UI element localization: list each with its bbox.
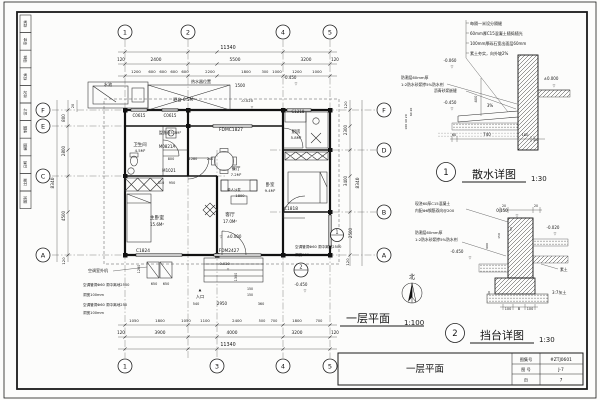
annotation-text: ▽ [304,289,307,293]
annotation-text: 5.8M² [291,135,302,140]
edge-strip-label: 审定 [23,37,28,45]
dim-total-top: 11340 [220,45,235,51]
note: 防潮层60mm厚 [401,75,429,80]
grid-bubble-label: C [41,172,46,180]
annotation-text: 240 [207,157,213,161]
edge-strip-label: 校对 [23,90,28,98]
annotation-text: 2400 [151,57,162,63]
annotation-text: 2400 [232,318,242,323]
annotation-text: 8340 [50,177,56,188]
level-mark: -0.450 [444,100,457,105]
edge-strip-label: 审核 [23,55,28,63]
callout-1-number: 1 [335,230,338,236]
note: 单人沙发 [227,187,241,192]
annotation-text: ▽ [451,65,454,69]
grid-bubble-label: 5 [328,362,332,370]
annotation-text: 800 [168,157,174,161]
annotation-text: 3200 [292,330,303,336]
eave-outline [104,99,339,264]
annotation-text: 120 [345,258,350,266]
room-label: 卧室 [266,181,275,188]
titleblock-value-sheetno: J-7 [557,367,564,373]
note: 1:2防水砂浆掺5%防水剂 [401,82,444,87]
note: 3:7灰土 [552,289,566,295]
titleblock-label-sheetno: 图 号 [521,367,531,373]
annotation-text: 120 [331,330,339,335]
annotation-text: 700 [316,319,323,323]
door-tag: M0821A [159,144,176,149]
entry-arrow: ▲ [199,288,202,292]
annotation-text: 60 [452,133,457,137]
annotation-text: B [518,307,521,311]
annotation-text: -0.450 [284,75,297,80]
room-label: 厨房 [292,128,301,135]
annotation-text: ▽ [451,107,454,111]
titleblock-value-page: 7 [560,378,563,384]
annotation-text: ▽ [469,256,472,260]
annotation-text: ▽ [295,82,298,86]
annotation-text: 120 [61,257,66,265]
note: 内配Φ6钢筋双向@200 [415,208,455,213]
annotation-text: 500 [259,319,266,323]
plan-annotations: 1134012024005500320012012006006006006002… [50,45,361,348]
annotation-text: 3200 [301,57,312,63]
annotation-text: ▽ [554,232,557,236]
annotation-text: 1800 [292,318,302,323]
dim-total-bottom: 11340 [220,342,235,348]
annotation-text: 2300 [343,124,348,135]
callout-2-number: 2 [299,265,302,271]
titleblock-label-page: 页 [524,378,528,384]
annotation-text: 600 [148,69,156,74]
window-C1818 [329,215,332,246]
grid-bubble-label: 1 [123,362,127,370]
annotation-text: 7.2M² [231,172,242,177]
window-tag: C0615 [133,113,146,118]
grid-bubble-label: 1 [123,28,127,36]
room-label: 客厅 [225,211,235,218]
note: 热水器位置 [191,78,211,84]
edge-strip-label: 日期 [23,161,28,169]
detail-2-curb: 现浇60厚C15混凝土内配Φ6钢筋双向@2000.150▽2020-0.020▽… [415,201,568,344]
annotation-text: ▽ [516,214,519,218]
plan-scale: 1:100 [404,319,424,327]
annotation-text: 4000 [227,330,238,336]
note: 空调管洞Φ60 洞中离地2500 [295,244,342,249]
annotation-text: 1000 [312,69,322,74]
bed-second [288,172,327,203]
grid-bubble-label: A [41,251,46,259]
plan-caption: 一层平面 1:100 [340,312,424,327]
annotation-text: ▽ [251,105,254,109]
annotation-text: 120 [343,101,348,109]
edge-strip-label: 图别 [23,196,28,204]
window-tag: C0615 [164,113,177,118]
annotation-text: 950 [169,181,175,185]
annotation-text: 9.4M² [265,188,276,193]
annotation-text: 1200 [292,69,302,74]
grid-bubble-label: 5 [328,28,332,36]
room-label: 餐厅 [232,165,241,172]
drawing-sheet: 批准审定审核标准校对设计制图描图日期比例图别 [0,0,600,400]
annotation-text: 100 [527,307,533,311]
level-mark: -0.020 [547,225,560,230]
annotation-text: 1050 [181,318,191,323]
window-door-FDMC1827 [213,125,252,128]
note: 100mm厚砾石宽出面层60mm [470,40,526,46]
annotation-text: 1100 [200,318,210,323]
annotation-text: 700 [271,319,278,323]
annotation-text: 1280 [137,265,141,274]
annotation-text: 150 [247,293,253,297]
door-tag: M1021 [162,168,176,173]
north-arrow: 北 [402,273,422,303]
grid-bubbles: 12451345FECAFDBA [36,25,391,373]
detail2-title: 挡台详图 [480,328,524,342]
grid-bubble-label: 3 [215,362,219,370]
note: 防潮层60mm厚 [415,230,443,235]
detail1-scale: 1:30 [531,175,547,183]
annotation-text: 50 [487,291,491,295]
annotation-text: 4.5M² [135,148,146,153]
grid-bubble-label: B [382,208,386,216]
level-mark: -0.450 [451,249,464,254]
annotation-text: 1200 [131,69,141,74]
window-tag: C1824 [136,248,150,254]
annotation-text: 20 [534,204,538,208]
sofa [221,180,257,204]
note: 1:2防水砂浆掺5%防水剂 [415,237,458,242]
annotation-text: 2800 [61,145,66,156]
toilet [130,153,138,166]
sheet-canvas: 批准审定审核标准校对设计制图描图日期比例图别 [0,0,600,400]
annotation-text: ▽ [553,84,556,88]
annotation-text: 100 [505,307,511,311]
note: 洞宽100mm [83,310,105,315]
washbasin [128,168,134,174]
plan-title: 一层平面 [346,312,390,325]
annotation-text: 5500 [230,57,241,63]
level-mark: -0.450 [295,282,308,287]
note: 洞宽100mm [295,252,317,257]
tv-stand [203,203,217,217]
edge-strip-label: 标准 [23,73,28,81]
cabinet-row [285,152,328,160]
door-tag: FDMC1827 [219,127,243,133]
annotation-text: 3400 [343,175,348,186]
room-label: 主卧室 [150,214,165,221]
window-C1824 [136,254,182,257]
level-mark: -0.020 [218,262,230,266]
door-tag: FDM2427 [219,248,240,254]
annotation-text: -0.020 [241,98,254,103]
titleblock-label-atlas: 图集号 [520,356,533,363]
detail1-number: 1 [443,168,448,178]
note: 现浇60厚C15混凝土 [415,201,450,206]
level-mark: ±0.000 [227,234,242,239]
annotation-text: 650 [163,282,169,286]
annotation-text: 360 [258,302,264,306]
annotation-text: 2500 [348,227,353,238]
sheet-title: 一层平面 [406,364,444,375]
annotation-text: 100 40 20 [404,114,408,129]
annotation-text: 8340 [355,177,361,188]
grid-bubble-label: A [382,251,387,259]
annotation-text: 150 [247,287,253,291]
edge-strip-label: 比例 [23,178,28,186]
annotation-text: 3% [487,103,494,108]
annotation-text: ▽ [227,267,230,271]
annotation-text: 1300 [234,273,238,282]
note: 素土夯实，向外坡2% [470,50,509,56]
grid-bubble-label: E [41,122,45,130]
annotation-text: 2950 [217,301,228,306]
note: 空调室外机 [88,267,108,273]
bed-master [127,194,151,242]
titleblock-value-atlas: #ZTJ0601 [550,357,572,363]
edge-strip-label: 描图 [23,143,28,151]
grid-bubble-label: F [382,106,386,114]
annotation-text: 180 [522,133,530,137]
annotation-text: 540 [193,302,199,306]
entry-label: 入口 [196,294,204,299]
window-C0615 [131,109,147,112]
note: 素土 [560,267,568,272]
annotation-text: 1280 [189,157,198,161]
note: 洞宽100mm [83,292,105,297]
annotation-text: 3900 [155,330,166,336]
room-label: 晒台 6.5M² [173,96,195,103]
room-label: 盥洗间3.3M² [159,130,182,135]
annotation-text: ▽ [220,235,223,239]
annotation-text: 120 [331,57,339,62]
detail-1-apron: 每隔一米设分隔缝60mm厚C15混凝土随捣随光100mm厚砾石宽出面层60mm素… [401,20,570,183]
grid-bubble-label: 4 [281,362,285,370]
annotation-text: 50 [509,227,513,231]
room-label: 卫生间 [133,141,146,148]
note: 每隔一米设分隔缝 [470,20,502,26]
detail2-scale: 1:30 [539,336,555,344]
annotation-text: 600 [485,243,489,249]
level-mark: -0.060 [444,58,457,63]
title-bar: 一层平面 图集号 #ZTJ0601 图 号 J-7 页 7 [338,353,583,385]
edge-strip-label: 制图 [23,125,28,133]
annotation-text: 2200 [205,69,215,74]
north-label: 北 [409,273,415,281]
grid-bubble-label: F [41,106,45,114]
grid-bubble-label: D [381,146,386,154]
annotation-text: 800 [61,114,66,122]
detail2-number: 2 [452,329,457,339]
annotation-text: 400 [474,95,478,103]
annotation-text: 310 [158,181,164,185]
annotation-text: 650 [151,282,157,286]
annotation-text: 740 [483,132,491,137]
edge-strip-label: 设计 [23,108,28,116]
grid-bubble-label: 2 [186,28,190,36]
room-label: 水池 [104,81,113,87]
detail1-title: 散水详图 [472,167,516,181]
annotation-text: 300 [262,70,269,74]
window-tag: C1818 [284,206,298,212]
note: 60mm厚C15混凝土随捣随光 [470,30,523,36]
annotation-text: 1800 [155,318,165,323]
annotation-text: 1800 [241,69,251,74]
note: 空调管洞Φ60 洞中离地250 [83,302,128,307]
level-mark: ±0.000 [544,76,559,81]
ac-outdoor-units [147,262,172,278]
grid-bubble-label: 4 [281,28,285,36]
annotation-text: 1000 [272,69,282,74]
annotation-text: 600 [170,69,178,74]
annotation-text: 17.0M² [223,219,237,224]
note: 沥青砂浆嵌缝 [434,88,457,93]
annotation-text: 150 [497,233,501,239]
annotation-text: 60 20 [409,108,413,117]
annotation-text: 120 [117,57,125,62]
annotation-text: 20 [71,104,75,108]
annotation-text: 600 [159,69,167,74]
annotation-text: 1500 [235,83,246,88]
edge-strip-label: 批准 [23,20,28,28]
level-mark: 0.150 [496,208,508,213]
window-door-FDM2427 [214,254,261,257]
leader-line [113,267,147,271]
annotation-text: 15.6M² [150,222,164,227]
edge-signature-strip: 批准审定审核标准校对设计制图描图日期比例图别 [20,15,31,209]
window-tag: C1218 [292,109,305,114]
annotation-text: 4500 [61,210,66,221]
annotation-text: 1050 [129,318,139,323]
annotation-text: 20 [502,204,506,208]
water-basin [88,82,148,108]
note: 空调管洞Φ60 洞中离地2500 [83,282,130,287]
annotation-text: 120 [117,330,125,335]
annotation-text: 20 [534,138,538,142]
annotation-text: 1800 [235,194,245,198]
annotation-text: 600 [181,69,189,74]
